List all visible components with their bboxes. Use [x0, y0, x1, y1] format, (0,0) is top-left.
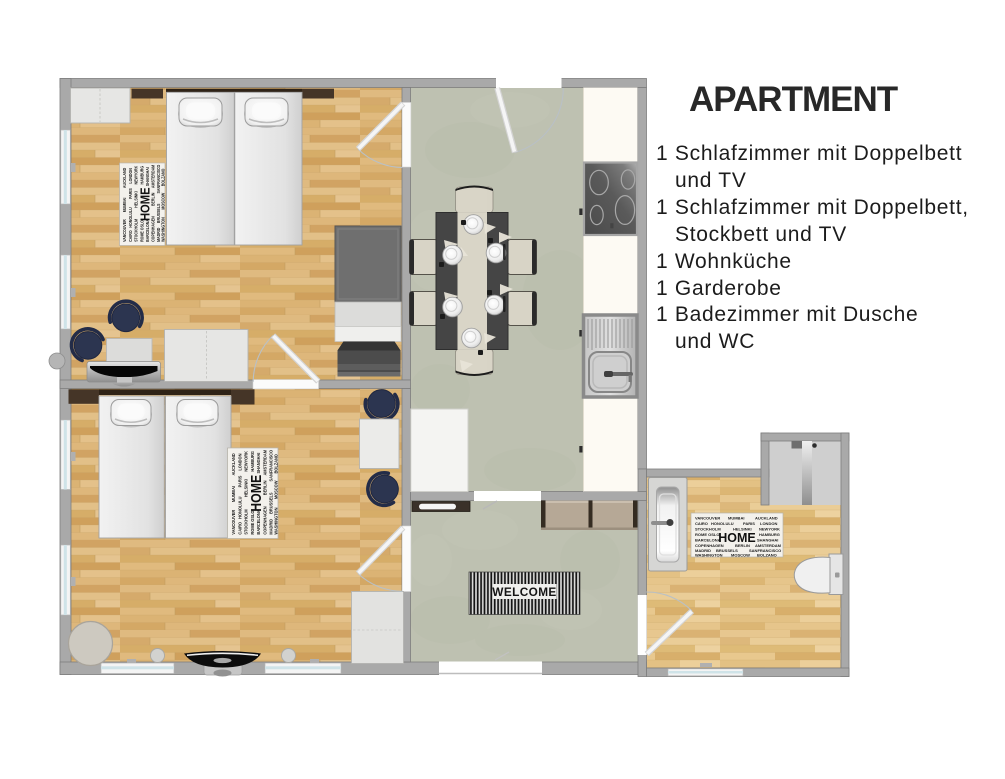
svg-text:WELCOME: WELCOME [492, 585, 556, 599]
svg-text:MOSCOW: MOSCOW [731, 553, 750, 558]
svg-text:WASHINGTON: WASHINGTON [695, 553, 723, 558]
svg-text:AUCKLAND: AUCKLAND [755, 516, 778, 521]
svg-text:CAIRO: CAIRO [695, 521, 708, 526]
svg-text:PARIS: PARIS [743, 521, 755, 526]
svg-text:VANCOUVER: VANCOUVER [695, 516, 720, 521]
svg-text:LONDON: LONDON [760, 521, 777, 526]
svg-text:NEWYORK: NEWYORK [759, 527, 780, 532]
svg-text:MUMBAI: MUMBAI [728, 516, 744, 521]
svg-text:BARCELONA: BARCELONA [695, 538, 721, 543]
svg-text:HONOLULU: HONOLULU [711, 521, 734, 526]
svg-text:ROME OSLO: ROME OSLO [695, 532, 719, 537]
svg-text:BOLZANO: BOLZANO [757, 553, 777, 558]
svg-text:HAMBURG: HAMBURG [759, 532, 780, 537]
svg-text:SHANGHAI: SHANGHAI [757, 538, 778, 543]
svg-text:HOME: HOME [718, 531, 756, 545]
